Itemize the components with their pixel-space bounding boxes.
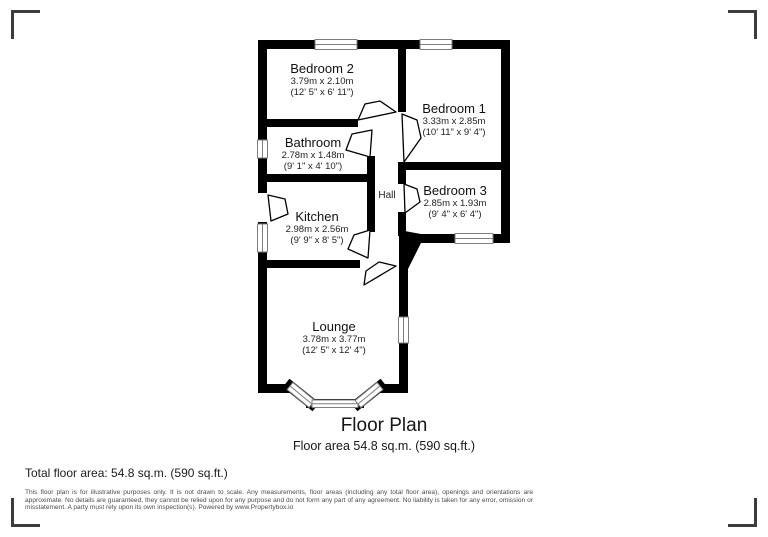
- bay-window-left: [287, 383, 315, 408]
- door-bedroom1: [402, 114, 421, 162]
- plan-subtitle: Floor area 54.8 sq.m. (590 sq.ft.): [0, 439, 768, 453]
- wall-bed2-bed1-divider: [398, 49, 406, 112]
- window-lounge-right: [399, 317, 409, 343]
- bay-window-right: [355, 383, 383, 408]
- door-bedroom2: [358, 101, 396, 120]
- window-bedroom2: [315, 40, 357, 50]
- wall-bed2-bathroom-divider: [267, 119, 358, 127]
- plan-title: Floor Plan: [0, 415, 768, 437]
- door-kitchen-exterior: [268, 195, 288, 221]
- wall-bed1-bed3-divider: [398, 162, 510, 170]
- door-lounge: [364, 262, 396, 285]
- doors: [268, 101, 421, 285]
- door-kitchen-hall: [348, 230, 370, 258]
- bay-window-bottom: [312, 400, 358, 408]
- disclaimer-text: This floor plan is for illustrative purp…: [25, 489, 533, 512]
- wall-top: [258, 40, 510, 49]
- wall-bed3-left-upper: [398, 170, 406, 184]
- total-floor-area: Total floor area: 54.8 sq.m. (590 sq.ft.…: [25, 466, 228, 480]
- walls: [258, 40, 510, 408]
- window-bedroom1: [420, 40, 452, 50]
- wall-bathroom-kitchen-divider: [267, 174, 375, 182]
- wall-hall-left: [367, 156, 375, 232]
- windows: [258, 40, 494, 408]
- window-bathroom: [258, 140, 268, 158]
- window-bedroom3: [455, 234, 493, 244]
- kitchen-exterior-door-gap: [256, 193, 268, 222]
- wall-kitchen-bottom: [267, 260, 360, 268]
- wall-bed3-left-lower: [398, 212, 406, 236]
- door-bedroom3: [404, 184, 420, 213]
- wall-right: [501, 40, 510, 243]
- window-kitchen: [258, 224, 268, 252]
- door-bathroom: [346, 130, 372, 157]
- floor-plan-drawing: [0, 0, 768, 537]
